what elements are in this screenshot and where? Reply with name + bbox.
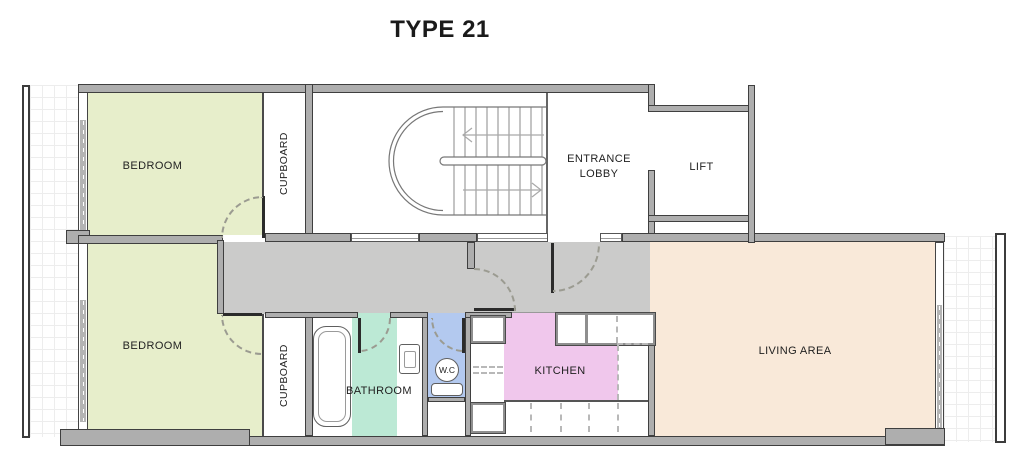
- kitchen-dash-line: [473, 366, 503, 368]
- counter-bottom-edge: [504, 400, 648, 402]
- label-entrance-lobby: ENTRANCE LOBBY: [550, 146, 648, 188]
- label-kitchen: KITCHEN: [510, 361, 610, 381]
- wall-corridor-top-b: [419, 233, 477, 242]
- room-living-area: [650, 242, 935, 436]
- wall-top: [78, 84, 655, 93]
- kitchen-dash-vertical: [617, 345, 619, 400]
- kitchen-unit-top-left: [471, 316, 505, 343]
- wall-cupboard-bottom: [262, 314, 264, 436]
- counter-dash: [617, 403, 619, 432]
- kitchen-counter-top: [556, 313, 655, 345]
- wall-lift-right: [748, 85, 755, 243]
- label-bedroom-bottom: BEDROOM: [95, 336, 210, 356]
- label-living-area: LIVING AREA: [730, 341, 860, 361]
- right-balcony-parapet: [995, 233, 1006, 443]
- kitchen-dash-line: [473, 372, 503, 374]
- wall-bathroom-wc: [422, 314, 428, 436]
- wall-stairhall-left: [305, 84, 313, 242]
- window-stairhall-a: [351, 233, 419, 242]
- floor-plan: TYPE 21: [0, 0, 1024, 468]
- wall-wc-bottom: [428, 397, 465, 402]
- window-bedroom-top: [80, 120, 86, 230]
- wall-bottom-block-right: [885, 428, 945, 445]
- wall-bottom-block-left: [60, 429, 250, 446]
- wall-corridor-door-stub: [467, 242, 475, 269]
- wall-lift-left-lower: [648, 170, 655, 234]
- staircase: [313, 93, 546, 233]
- plan-title: TYPE 21: [330, 16, 550, 44]
- wall-corridor-stub: [217, 240, 224, 314]
- label-cupboard-bottom: CUPBOARD: [270, 318, 298, 433]
- label-bathroom: BATHROOM: [330, 381, 428, 401]
- wall-corridor-top-a: [265, 233, 351, 242]
- wall-corridor-bottom-b: [390, 312, 428, 318]
- toilet-tank: [431, 383, 463, 396]
- counter-dash: [588, 403, 590, 432]
- label-cupboard-top: CUPBOARD: [270, 105, 298, 223]
- counter-dash: [530, 403, 532, 432]
- kitchen-dash-horizontal: [617, 343, 648, 345]
- wall-lift-bottom: [648, 215, 755, 222]
- left-balcony-parapet: [22, 85, 30, 438]
- window-bedroom-bottom: [80, 300, 86, 422]
- bathroom-sink: [399, 344, 420, 374]
- left-balcony-floor: [30, 85, 78, 437]
- wall-living-top: [622, 233, 945, 242]
- kitchen-unit-bottom-left: [471, 403, 505, 433]
- kitchen-corridor-boundary: [512, 312, 557, 313]
- window-stairhall-b: [477, 233, 548, 242]
- right-balcony-floor: [944, 236, 995, 442]
- counter-dash: [560, 403, 562, 432]
- counter-divider: [585, 315, 588, 343]
- wall-bathroom-left: [305, 314, 313, 436]
- bathtub: [313, 326, 351, 427]
- window-living-area: [937, 305, 942, 429]
- wall-stair-lobby-divider: [546, 93, 548, 233]
- label-bedroom-top: BEDROOM: [95, 156, 210, 176]
- counter-dash: [616, 316, 618, 343]
- label-lift: LIFT: [655, 157, 748, 177]
- label-wc: W.C: [432, 362, 462, 378]
- wall-lift-top: [648, 105, 755, 112]
- window-lobby: [600, 233, 622, 242]
- wall-bedroom-divider: [78, 235, 223, 244]
